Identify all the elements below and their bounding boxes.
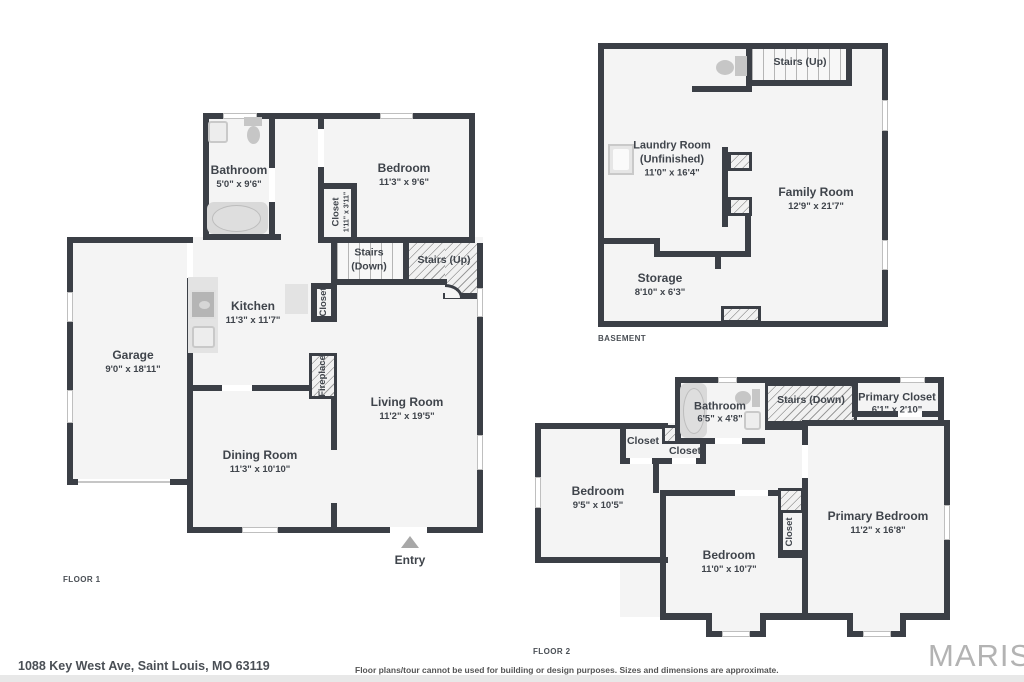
- room-label-stairs-down: Stairs (Down): [342, 246, 396, 273]
- window: [477, 435, 483, 470]
- room-label-stairs-up: Stairs (Up): [417, 254, 470, 268]
- room-dims: 6'1" x 2'10": [858, 405, 936, 417]
- door-opening: [222, 385, 252, 391]
- room-label-family: Family Room 12'9" x 21'7": [778, 185, 853, 213]
- wall: [67, 237, 193, 243]
- bay-opening: [712, 613, 760, 620]
- wall: [715, 251, 721, 269]
- wall: [692, 86, 752, 92]
- room-name: Bedroom: [701, 548, 756, 564]
- kitchen-sink-icon: [192, 326, 215, 348]
- wall: [331, 417, 337, 450]
- garage-door-line: [78, 481, 170, 483]
- room-label-laundry: Laundry Room (Unfinished) 11'0" x 16'4": [633, 139, 711, 180]
- wall: [601, 238, 660, 244]
- sink-icon: [208, 121, 228, 143]
- window: [882, 240, 888, 270]
- window: [67, 390, 73, 423]
- room-name: Bedroom: [572, 484, 625, 500]
- wall: [660, 490, 666, 620]
- chimney-hatch: [662, 425, 678, 444]
- toilet-icon: [752, 389, 760, 407]
- window: [535, 477, 541, 508]
- room-name: Bathroom: [694, 400, 746, 414]
- wall: [535, 423, 668, 429]
- wall: [882, 43, 888, 327]
- footer-divider: [0, 675, 1024, 682]
- room-name: Stairs (Up): [417, 254, 470, 268]
- bathtub-icon: [207, 202, 268, 234]
- entry-door-opening: [390, 527, 427, 533]
- window: [900, 377, 925, 383]
- room-name: Kitchen: [226, 299, 281, 315]
- door-opening: [269, 168, 275, 202]
- window: [882, 100, 888, 131]
- room-label-hall-closet: Closet: [318, 287, 330, 316]
- property-address: 1088 Key West Ave, Saint Louis, MO 63119: [18, 659, 270, 673]
- window: [722, 631, 750, 637]
- wall: [331, 399, 337, 417]
- room-dims: 9'5" x 10'5": [572, 500, 625, 512]
- toilet-icon: [735, 56, 747, 76]
- chimney-hatch: [728, 197, 752, 216]
- room-name: Stairs (Down): [342, 246, 396, 273]
- room-label-closet-mid: Closet: [784, 517, 796, 546]
- room-label-closet-a: Closet: [627, 435, 659, 449]
- room-name: Living Room: [371, 395, 444, 411]
- window: [863, 631, 891, 637]
- wall: [535, 557, 668, 563]
- bathtub-drain: [252, 216, 256, 220]
- room-name: Closet: [318, 287, 330, 316]
- room-name: Stairs (Up): [773, 56, 826, 70]
- room-label-bedroom: Bedroom 11'3" x 9'6": [378, 161, 431, 189]
- door-opening: [187, 243, 193, 278]
- toilet-icon: [716, 60, 734, 75]
- window: [380, 113, 413, 119]
- room-label-primary-closet: Primary Closet 6'1" x 2'10": [858, 391, 936, 418]
- door-opening: [735, 490, 768, 496]
- room-dims: 9'0" x 18'11": [105, 364, 160, 376]
- room-label-bedroom-left: Bedroom 9'5" x 10'5": [572, 484, 625, 512]
- room-name: Dining Room: [223, 448, 298, 464]
- room-name: Bedroom: [378, 161, 431, 177]
- room-label-fireplace: Fireplace: [317, 355, 329, 397]
- entry-label: Entry: [395, 553, 426, 569]
- room-label-closet: Closet 1'11" x 3'11": [330, 192, 351, 232]
- disclaimer-text: Floor plans/tour cannot be used for buil…: [355, 665, 779, 675]
- wall: [846, 49, 852, 80]
- room-name: Storage: [635, 271, 686, 287]
- wall: [802, 420, 944, 426]
- room-dims: 11'3" x 10'10": [223, 464, 298, 476]
- door-opening: [715, 438, 742, 444]
- entry-arrow-icon: [401, 536, 419, 548]
- chimney-hatch: [778, 488, 804, 513]
- room-name: Closet: [330, 192, 342, 232]
- room-name: Garage: [105, 348, 160, 364]
- room-name: Primary Closet: [858, 391, 936, 405]
- room-dims: 11'0" x 16'4": [633, 167, 711, 179]
- wall: [331, 283, 337, 322]
- door-opening: [802, 445, 808, 478]
- stove-burner: [199, 301, 210, 309]
- room-label-storage: Storage 8'10" x 6'3": [635, 271, 686, 299]
- room-label-bathroom: Bathroom 6'5" x 4'8": [694, 400, 746, 427]
- wall: [654, 251, 751, 257]
- room-label-bathroom: Bathroom 5'0" x 9'6": [211, 163, 268, 191]
- room-dims: 11'0" x 10'7": [701, 564, 756, 576]
- room-dims: 11'2" x 19'5": [371, 411, 444, 423]
- washer-door: [613, 149, 629, 170]
- chimney-hatch: [721, 306, 761, 323]
- window: [944, 505, 950, 540]
- floor-plan-page: Bathroom 5'0" x 9'6" Bedroom 11'3" x 9'6…: [0, 0, 1024, 682]
- refrigerator-icon: [285, 284, 308, 314]
- wall: [598, 43, 888, 49]
- room-dims: 12'9" x 21'7": [778, 201, 853, 213]
- window: [67, 292, 73, 322]
- room-dims: 8'10" x 6'3": [635, 287, 686, 299]
- room-label-closet-b: Closet: [669, 445, 701, 459]
- room-dims: 6'5" x 4'8": [694, 414, 746, 426]
- wall: [598, 43, 604, 327]
- room-label-garage: Garage 9'0" x 18'11": [105, 348, 160, 376]
- window: [242, 527, 278, 533]
- door-opening: [630, 458, 652, 464]
- chimney-hatch: [728, 152, 752, 171]
- room-label-living: Living Room 11'2" x 19'5": [371, 395, 444, 423]
- room-name: Family Room: [778, 185, 853, 201]
- room-dims: 11'3" x 9'6": [378, 177, 431, 189]
- wall: [938, 377, 944, 426]
- wall: [653, 464, 659, 493]
- room-label-stairs-down: Stairs (Down): [777, 394, 845, 408]
- wall: [469, 113, 475, 243]
- window: [477, 288, 483, 317]
- room-label-stairs-up: Stairs (Up): [773, 56, 826, 70]
- wall: [752, 80, 852, 86]
- basement-tag: BASEMENT: [598, 334, 646, 343]
- room-dims: 5'0" x 9'6": [211, 179, 268, 191]
- room-name: Entry: [395, 553, 426, 569]
- room-label-dining: Dining Room 11'3" x 10'10": [223, 448, 298, 476]
- wall: [318, 237, 475, 243]
- toilet-icon: [244, 117, 262, 126]
- washer-icon: [608, 144, 634, 175]
- door-opening: [318, 129, 324, 167]
- room-dims: 11'3" x 11'7": [226, 315, 281, 327]
- toilet-icon: [247, 126, 260, 144]
- room-name: Fireplace: [317, 355, 329, 397]
- floor1-tag: FLOOR 1: [63, 575, 100, 584]
- room-name: Closet: [784, 517, 796, 546]
- bay-opening: [853, 613, 900, 620]
- wall: [351, 189, 357, 237]
- maris-logo: MARIS: [928, 638, 1024, 674]
- sink-icon: [744, 411, 761, 430]
- room-label-kitchen: Kitchen 11'3" x 11'7": [226, 299, 281, 327]
- wall: [403, 243, 409, 280]
- wall: [477, 243, 483, 533]
- room-name: (Unfinished): [633, 153, 711, 167]
- door-opening: [672, 458, 696, 464]
- room-name: Closet: [627, 435, 659, 449]
- wall: [67, 237, 73, 485]
- window: [718, 377, 737, 383]
- wall: [187, 527, 483, 533]
- room-name: Closet: [669, 445, 701, 459]
- room-label-bedroom-mid: Bedroom 11'0" x 10'7": [701, 548, 756, 576]
- wall: [778, 550, 802, 558]
- room-name: Stairs (Down): [777, 394, 845, 408]
- stove-icon: [190, 290, 216, 319]
- wall: [331, 243, 337, 283]
- room-label-primary-bedroom: Primary Bedroom 11'2" x 16'8": [828, 509, 929, 537]
- room-name: Bathroom: [211, 163, 268, 179]
- wall: [778, 513, 783, 552]
- room-name: Laundry Room: [633, 139, 711, 153]
- wall: [335, 279, 447, 285]
- floor2-tag: FLOOR 2: [533, 647, 570, 656]
- room-name: Primary Bedroom: [828, 509, 929, 525]
- room-dims: 1'11" x 3'11": [343, 192, 352, 232]
- room-dims: 11'2" x 16'8": [828, 525, 929, 537]
